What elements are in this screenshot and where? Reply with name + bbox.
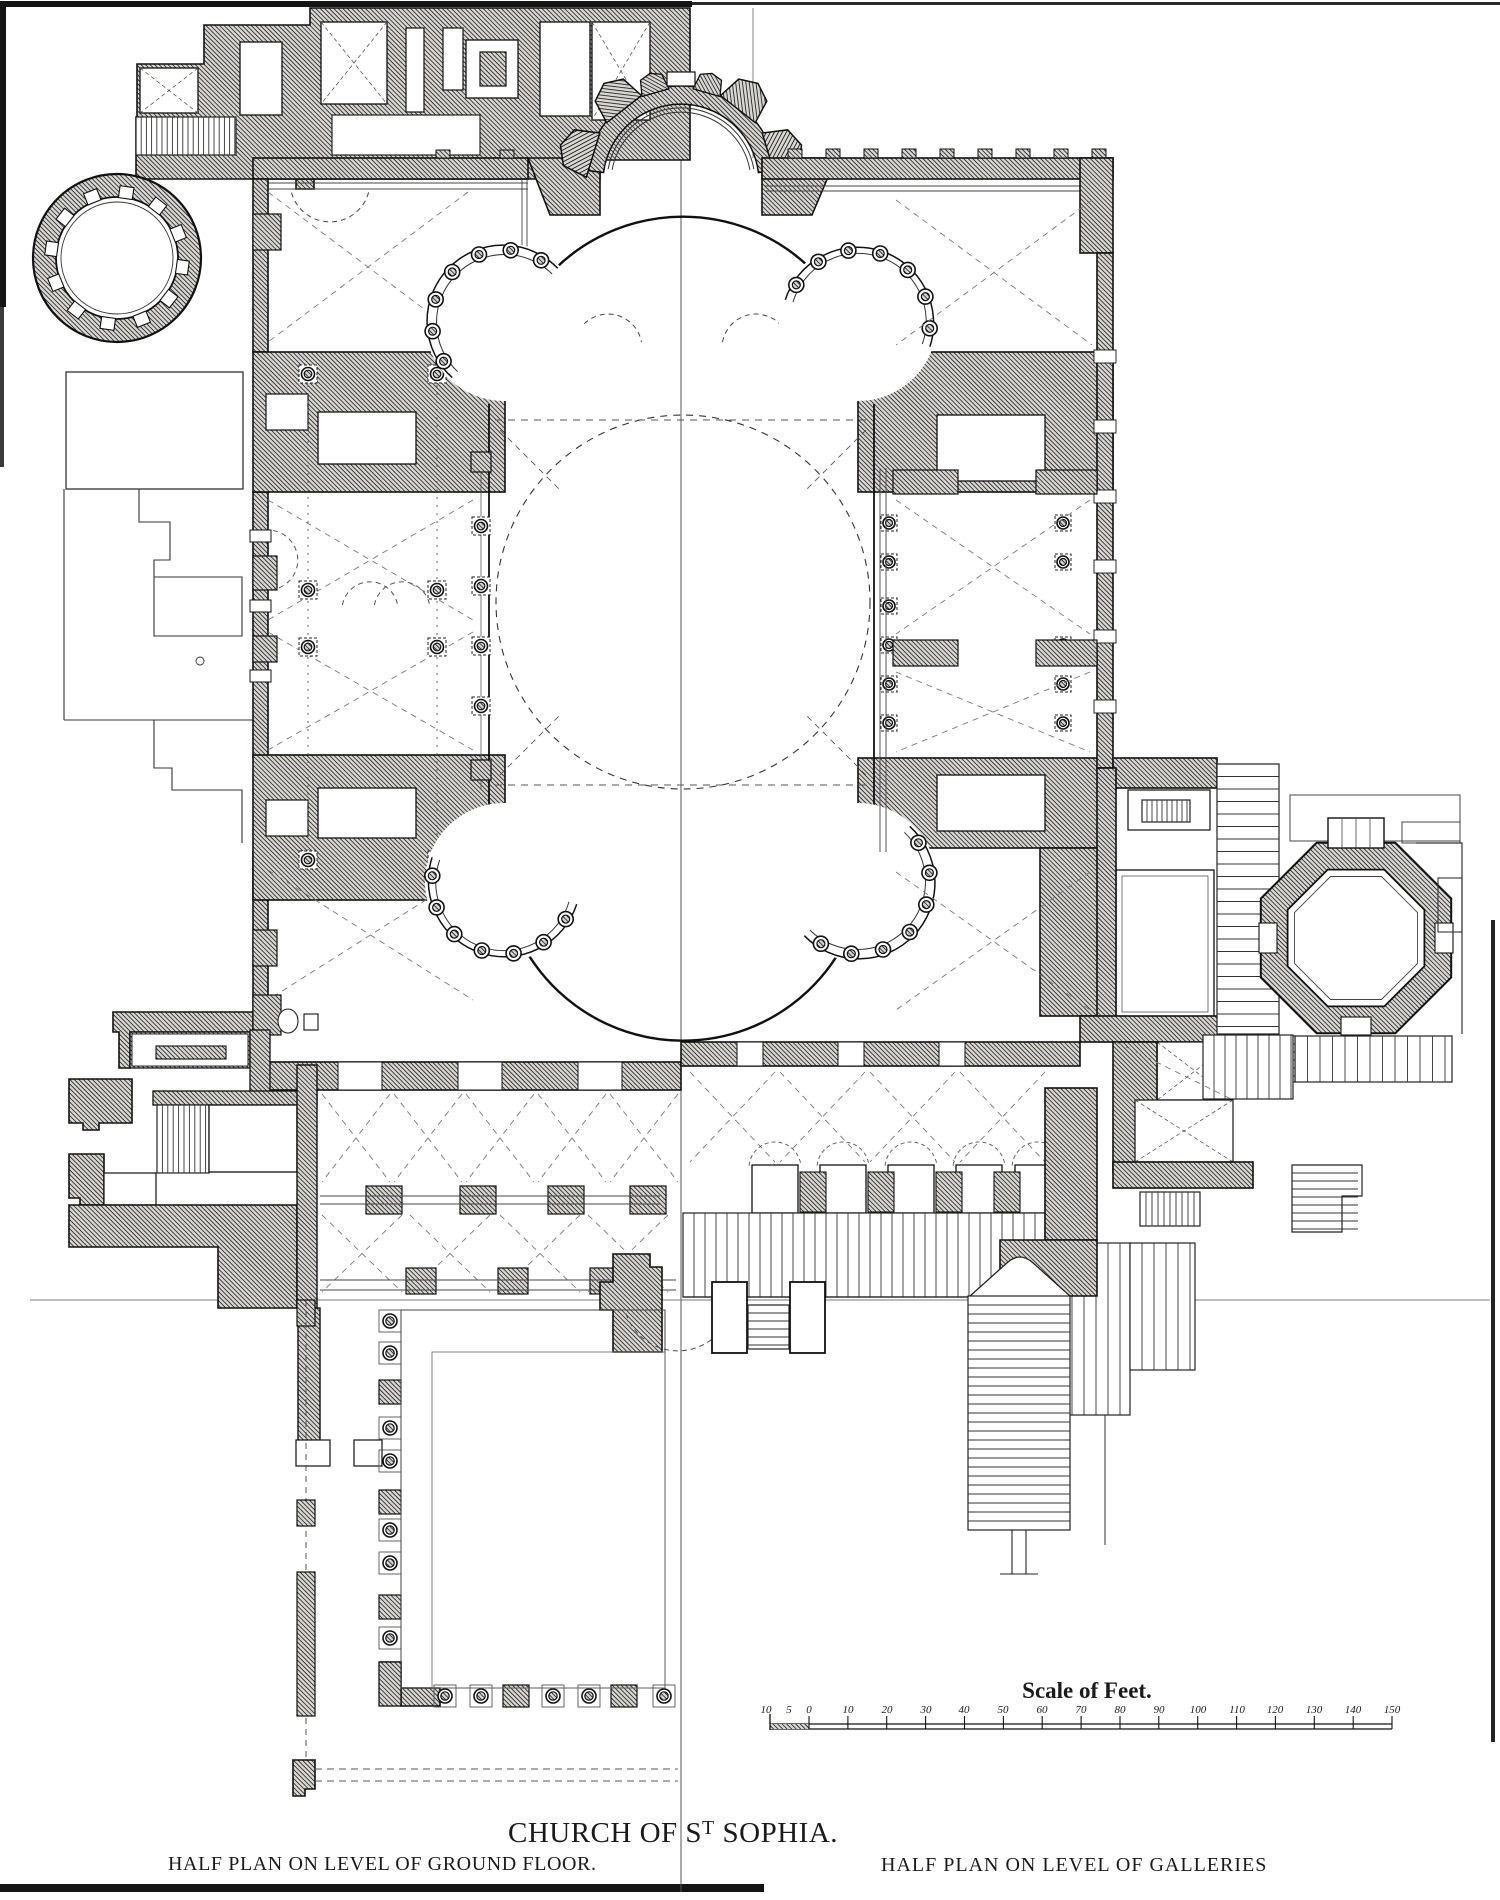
svg-text:CHURCH OF ST SOPHIA.: CHURCH OF ST SOPHIA. <box>508 1817 838 1849</box>
svg-text:110: 110 <box>1229 1704 1245 1716</box>
svg-text:HALF PLAN ON LEVEL OF GROUND F: HALF PLAN ON LEVEL OF GROUND FLOOR. <box>168 1853 597 1875</box>
svg-text:5: 5 <box>786 1704 792 1716</box>
svg-text:40: 40 <box>959 1704 971 1716</box>
svg-text:130: 130 <box>1306 1704 1323 1716</box>
svg-text:0: 0 <box>806 1704 812 1716</box>
svg-text:10: 10 <box>843 1704 855 1716</box>
svg-text:100: 100 <box>1190 1704 1207 1716</box>
svg-text:140: 140 <box>1345 1704 1362 1716</box>
svg-text:60: 60 <box>1037 1704 1049 1716</box>
svg-text:10: 10 <box>761 1704 773 1716</box>
svg-text:120: 120 <box>1267 1704 1284 1716</box>
svg-text:90: 90 <box>1154 1704 1166 1716</box>
svg-text:70: 70 <box>1076 1704 1088 1716</box>
svg-text:80: 80 <box>1115 1704 1127 1716</box>
svg-text:20: 20 <box>882 1704 894 1716</box>
svg-text:Scale of Feet.: Scale of Feet. <box>1022 1678 1152 1703</box>
svg-text:50: 50 <box>998 1704 1010 1716</box>
svg-text:150: 150 <box>1384 1704 1401 1716</box>
svg-text:30: 30 <box>920 1704 933 1716</box>
svg-text:HALF PLAN ON LEVEL OF GALLERIE: HALF PLAN ON LEVEL OF GALLERIES <box>881 1854 1267 1876</box>
